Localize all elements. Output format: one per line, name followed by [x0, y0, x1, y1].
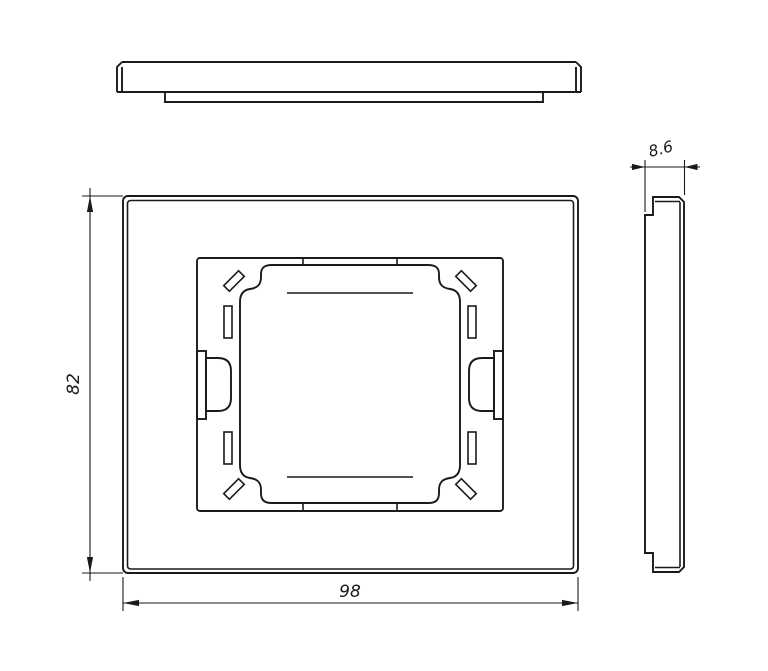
side-profile-outline [645, 197, 684, 572]
thickness-arrow-right [685, 164, 698, 170]
top-view [117, 62, 581, 102]
clip-left-latch [206, 358, 231, 411]
slot-right-bottom [468, 432, 476, 464]
front-view [123, 196, 578, 573]
diagonal-slot-bottom-right [456, 479, 477, 500]
mounting-frame [197, 258, 503, 511]
width-arrow-right [562, 600, 578, 606]
side-view [645, 197, 684, 572]
clip-right-latch [469, 358, 494, 411]
plate-outline [123, 196, 578, 573]
width-arrow-left [123, 600, 139, 606]
diagonal-slot-top-left [224, 271, 245, 292]
clip-right-housing [494, 351, 503, 419]
thickness-arrow-left [632, 164, 645, 170]
window-opening [240, 265, 460, 503]
clip-right [469, 351, 503, 419]
technical-drawing: 82 98 8.6 [0, 0, 768, 671]
diagonal-slot-top-right [456, 271, 477, 292]
slot-left-bottom [224, 432, 232, 464]
clip-left [197, 351, 231, 419]
slot-left-top [224, 306, 232, 338]
dimension-height: 82 [64, 188, 123, 581]
clip-left-housing [197, 351, 206, 419]
slot-right-top [468, 306, 476, 338]
top-view-rear-block [165, 92, 543, 102]
drawing-canvas: 82 98 8.6 [0, 0, 768, 671]
height-arrow-up [87, 196, 93, 212]
thickness-dimension-label: 8.6 [647, 137, 675, 160]
diagonal-slot-bottom-left [224, 479, 245, 500]
height-dimension-label: 82 [64, 373, 84, 395]
dimension-width: 98 [123, 577, 578, 611]
plate-face-edge [128, 201, 574, 570]
width-dimension-label: 98 [339, 582, 361, 602]
height-arrow-down [87, 557, 93, 573]
